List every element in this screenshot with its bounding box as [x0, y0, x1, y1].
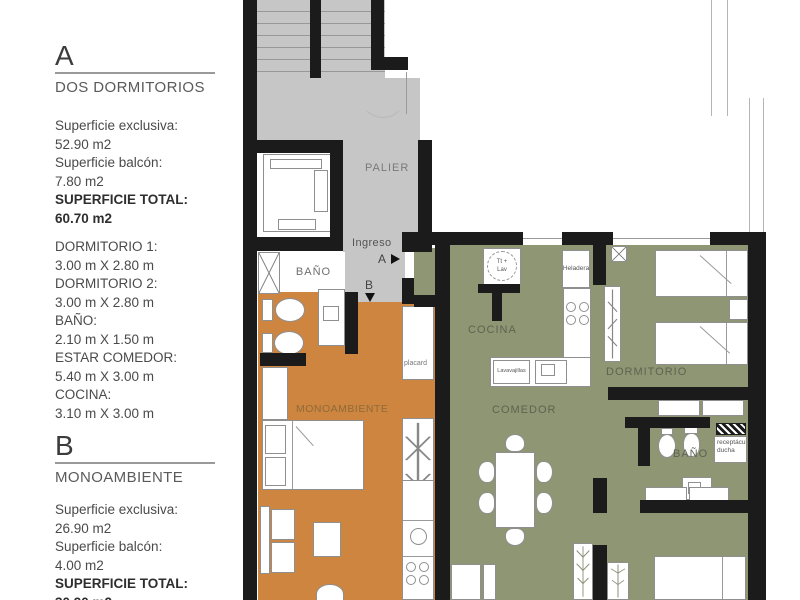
- sink-basin-icon: [541, 364, 555, 376]
- door-swing-arc: [360, 72, 406, 118]
- building-edge-line: [711, 0, 712, 116]
- floorplan-page: A DOS DORMITORIOS Superficie exclusiva: …: [0, 0, 800, 600]
- bidet-icon: [274, 331, 304, 355]
- palier-label: PALIER: [365, 162, 409, 174]
- dishwasher: Lavavajillas: [493, 360, 530, 384]
- service-shaft: [258, 252, 280, 294]
- vent-shaft: [611, 246, 627, 262]
- wall-bano-b-right: [345, 292, 358, 354]
- spec-line: 4.00 m2: [55, 557, 220, 576]
- room-dim-line: DORMITORIO 2:: [55, 275, 220, 294]
- wall-bano-b-bottom: [260, 353, 306, 366]
- placard-label: placard: [404, 360, 427, 368]
- shower-label: receptáculoducha: [717, 439, 744, 454]
- building-edge-line: [749, 98, 750, 232]
- bano-a-label: BAÑO: [673, 448, 708, 460]
- wall-stair-divider: [310, 0, 321, 78]
- nightstand: [729, 299, 748, 320]
- spec-line: Superficie balcón:: [55, 538, 220, 557]
- window-line: [613, 238, 710, 239]
- toilet-tank-icon: [262, 299, 273, 321]
- sofa-back: [260, 506, 270, 574]
- room-dim-line: 3.00 m X 2.80 m: [55, 257, 220, 276]
- plant-pot-icon: [316, 584, 344, 600]
- wall-elevator-right: [330, 140, 343, 251]
- elevator-door: [278, 219, 316, 230]
- bed-pillow-line: [726, 251, 727, 296]
- counter-divider: [403, 520, 433, 521]
- unit-b-divider-line: [55, 462, 215, 464]
- bed-pillow-line: [726, 323, 727, 364]
- wall-elevator-bottom: [250, 237, 343, 251]
- wall-laundry-stub2: [492, 293, 502, 321]
- toilet-icon: [275, 298, 305, 322]
- spec-line: 52.90 m2: [55, 136, 220, 155]
- unit-a-room-dimensions: DORMITORIO 1: 3.00 m X 2.80 m DORMITORIO…: [55, 238, 220, 423]
- sink-icon: [323, 306, 339, 321]
- dining-chair: [536, 461, 553, 483]
- bidet-tank-icon: [262, 333, 273, 353]
- unit-a-letter: A: [55, 40, 220, 72]
- wall-comedor-dorm2-lower: [593, 545, 607, 600]
- burner-icon: [566, 315, 576, 325]
- room-dim-line: 3.10 m X 3.00 m: [55, 405, 220, 424]
- closet-box: [658, 400, 700, 416]
- wall-cocina-dorm: [593, 245, 606, 285]
- dining-chair: [536, 492, 553, 514]
- closet-box: [702, 400, 744, 416]
- spec-line: Superficie exclusiva:: [55, 117, 220, 136]
- wall-comedor-dorm2-upper: [593, 478, 607, 513]
- info-panel: A DOS DORMITORIOS Superficie exclusiva: …: [0, 0, 230, 600]
- dormitorio-label: DORMITORIO: [606, 366, 687, 378]
- room-dim-line: 3.00 m X 2.80 m: [55, 294, 220, 313]
- room-dim-line: DORMITORIO 1:: [55, 238, 220, 257]
- shower-wall-hatch: [716, 423, 746, 435]
- floorplan-drawing: BAÑO placard Tt +Lav: [230, 0, 800, 600]
- spec-line-total: SUPERFICIE TOTAL:: [55, 191, 220, 210]
- coffee-table: [313, 522, 341, 557]
- wall-bano-a-bottom: [640, 500, 748, 513]
- unit-a-surface-specs: Superficie exclusiva: 52.90 m2 Superfici…: [55, 117, 220, 228]
- wall-entry-a-stub: [414, 295, 435, 307]
- unit-b-marker: B: [365, 278, 373, 292]
- wall-unit-divider: [435, 240, 450, 600]
- stove-burners: [566, 302, 591, 325]
- sofa-cushion: [271, 509, 295, 540]
- spec-line: Superficie balcón:: [55, 154, 220, 173]
- building-edge-line: [727, 0, 728, 116]
- entry-door-leaf: [406, 72, 407, 114]
- unit-b-title: MONOAMBIENTE: [55, 469, 220, 487]
- wall-bano-a-top: [625, 417, 710, 428]
- dining-table: [495, 452, 535, 528]
- wall-dorm-bottom: [608, 387, 748, 400]
- washer-label: Tt +Lav: [492, 259, 512, 274]
- wall-laundry-stub: [478, 284, 520, 293]
- kitchen-sink-icon: [410, 528, 427, 545]
- entry-b-arrow-icon: [365, 293, 375, 302]
- unit-a-info-section: A DOS DORMITORIOS Superficie exclusiva: …: [55, 40, 220, 423]
- pillow-icon: [265, 457, 286, 486]
- spec-line: Superficie exclusiva:: [55, 501, 220, 520]
- wall-entry-a: [402, 278, 414, 304]
- burner-icon: [406, 562, 416, 572]
- wardrobe-strip: [604, 286, 621, 362]
- ingreso-label: Ingreso: [352, 237, 392, 249]
- dining-chair: [505, 434, 525, 452]
- cocina-label: COCINA: [468, 324, 517, 336]
- sideboard: [451, 564, 481, 600]
- burner-icon: [406, 575, 416, 585]
- plant-icon: [573, 543, 593, 600]
- stove-burners: [406, 562, 431, 585]
- entry-a-arrow-icon: [391, 254, 400, 264]
- wall-outer-right: [748, 232, 766, 600]
- wall-bano-a-left: [638, 428, 650, 466]
- unit-a-title: DOS DORMITORIOS: [55, 79, 220, 97]
- shower-receptacle: receptáculoducha: [714, 436, 747, 463]
- wall-top-a2: [562, 232, 613, 245]
- staircase: [257, 0, 385, 78]
- counter-divider: [403, 556, 433, 557]
- burner-icon: [579, 302, 589, 312]
- unit-b-surface-specs: Superficie exclusiva: 26.90 m2 Superfici…: [55, 501, 220, 600]
- spec-line: 26.90 m2: [55, 520, 220, 539]
- pillow-icon: [265, 425, 286, 454]
- spec-line-total-value: 30.90 m2: [55, 594, 220, 600]
- sideboard: [483, 564, 496, 600]
- elevator-door-mechanism: [270, 159, 322, 169]
- bano-b-room: BAÑO: [282, 252, 345, 292]
- unit-a-marker: A: [378, 252, 386, 266]
- burner-icon: [419, 575, 429, 585]
- spec-line-total: SUPERFICIE TOTAL:: [55, 575, 220, 594]
- unit-a-divider-line: [55, 72, 215, 74]
- dining-chair: [478, 461, 495, 483]
- dishwasher-label: Lavavajillas: [497, 368, 525, 376]
- fridge: Heladera: [562, 250, 590, 288]
- room-dim-line: 5.40 m X 3.00 m: [55, 368, 220, 387]
- wall-outer-left: [243, 0, 257, 600]
- unit-b-letter: B: [55, 430, 220, 462]
- wall-stub: [384, 57, 408, 70]
- burner-icon: [566, 302, 576, 312]
- room-dim-line: BAÑO:: [55, 312, 220, 331]
- room-dim-line: ESTAR COMEDOR:: [55, 349, 220, 368]
- window-line: [523, 238, 562, 239]
- dining-chair: [478, 492, 495, 514]
- elevator-counterweight: [314, 170, 328, 212]
- burner-icon: [579, 315, 589, 325]
- bed-pillow-line: [722, 557, 723, 599]
- dining-chair: [505, 528, 525, 546]
- wall-palier-right: [418, 140, 432, 240]
- unit-a-entry-floor: [414, 248, 435, 295]
- bed-double: [654, 556, 746, 600]
- placard-closet: [402, 306, 434, 380]
- monoambiente-label: MONOAMBIENTE: [296, 403, 388, 415]
- bano-b-label: BAÑO: [296, 266, 331, 278]
- spec-line-total-value: 60.70 m2: [55, 210, 220, 229]
- plant-icon: [607, 562, 629, 600]
- wall-stair-right: [371, 0, 384, 70]
- wall-top-a1: [402, 232, 523, 245]
- nightstand: [262, 367, 288, 420]
- fridge-label: Heladera: [563, 265, 589, 273]
- room-dim-line: 2.10 m X 1.50 m: [55, 331, 220, 350]
- burner-icon: [419, 562, 429, 572]
- building-edge-line: [763, 98, 764, 232]
- room-dim-line: COCINA:: [55, 386, 220, 405]
- comedor-label: COMEDOR: [492, 404, 556, 416]
- unit-b-info-section: B MONOAMBIENTE Superficie exclusiva: 26.…: [55, 430, 220, 600]
- spec-line: 7.80 m2: [55, 173, 220, 192]
- sofa-cushion: [271, 542, 295, 573]
- bed-sheet-line: [292, 421, 293, 489]
